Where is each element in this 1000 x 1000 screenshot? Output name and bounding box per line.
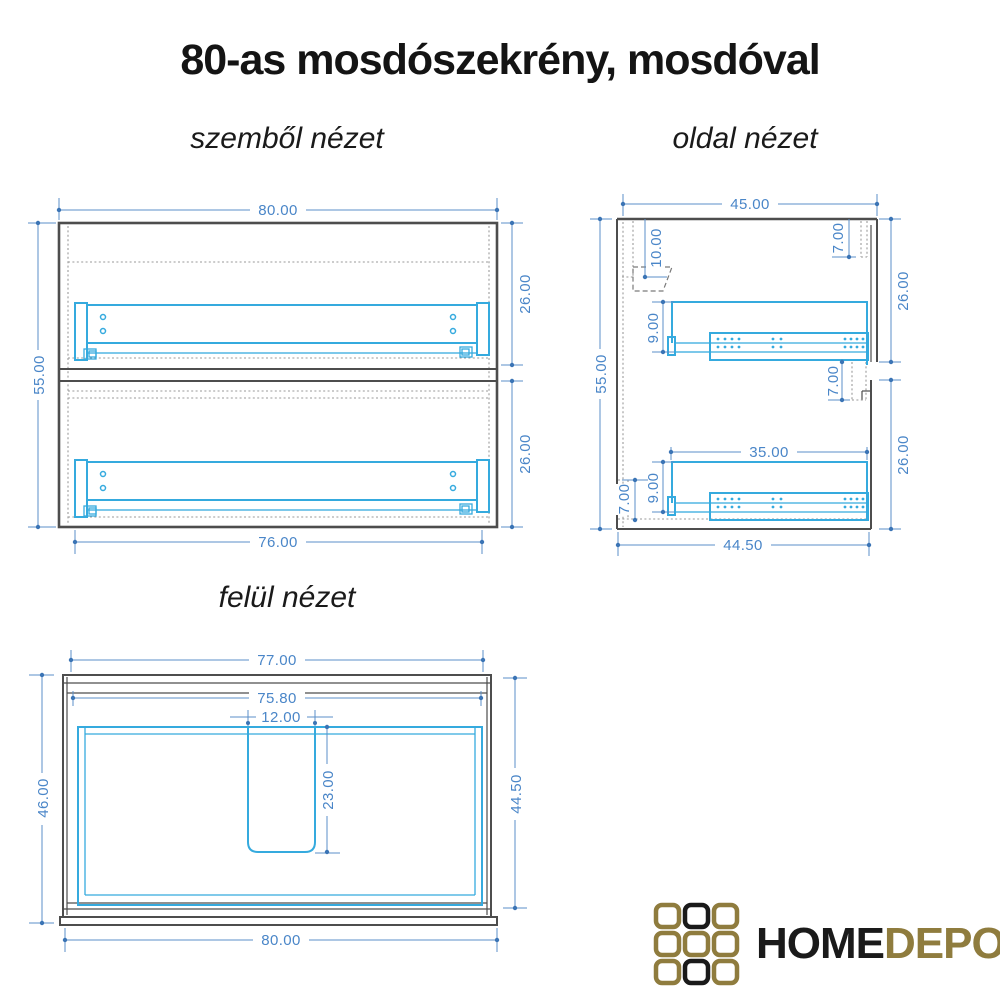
logo-text-home: HOME [756, 919, 884, 968]
dim-side-height: 55.00 [593, 354, 610, 394]
dim-side-lower-section: 26.00 [895, 435, 912, 475]
dim-top-depth-left: 46.00 [35, 778, 52, 818]
logo-grid-icon [652, 902, 740, 986]
dim-top-width-bottom: 80.00 [261, 932, 301, 949]
dim-side-mid-front: 7.00 [825, 366, 842, 397]
wall-bracket-dashed [633, 267, 672, 291]
front-view-drawing: 80.00 55.00 26.00 26.00 76.00 [28, 198, 534, 554]
front-upper-drawer [75, 303, 489, 360]
dim-side-depth-bottom: 44.50 [723, 537, 763, 554]
dim-top-width-inner: 75.80 [257, 690, 297, 707]
dim-side-drawer-depth: 35.00 [749, 444, 789, 461]
dim-side-upper-section: 26.00 [895, 271, 912, 311]
dim-side-depth-top: 45.00 [730, 196, 770, 213]
dim-top-width-top: 77.00 [257, 652, 297, 669]
side-view-drawing: 45.00 55.00 10.00 7.00 26.00 [590, 194, 912, 556]
dim-front-height: 55.00 [31, 355, 48, 395]
top-front-slab [60, 917, 497, 925]
dim-side-upper-rail-offset: 9.00 [645, 313, 662, 344]
logo-text: HOMEDEPO [756, 919, 1000, 969]
top-cabinet-blue [78, 727, 482, 905]
logo: HOMEDEPO [652, 902, 1000, 986]
dim-front-width-top: 80.00 [258, 202, 298, 219]
dim-top-cutout-width: 12.00 [261, 709, 301, 726]
dim-top-depth-right: 44.50 [508, 774, 525, 814]
front-cabinet-outline [59, 223, 497, 527]
siphon-cutout [248, 727, 315, 852]
technical-drawing: 80.00 55.00 26.00 26.00 76.00 [0, 0, 1000, 1000]
logo-text-depo: DEPO [884, 919, 1000, 968]
top-dimensions: 77.00 75.80 12.00 23.00 46.00 [29, 650, 527, 952]
side-dimensions: 45.00 55.00 10.00 7.00 26.00 [590, 194, 912, 556]
front-lower-drawer [75, 460, 489, 517]
dim-side-top-front: 7.00 [830, 223, 847, 254]
dim-front-lower-drawer: 26.00 [517, 434, 534, 474]
dim-top-cutout-depth: 23.00 [320, 770, 337, 810]
side-lower-drawer [668, 462, 868, 520]
dim-front-width-bottom: 76.00 [258, 534, 298, 551]
dim-front-upper-drawer: 26.00 [517, 274, 534, 314]
dim-side-plinth: 7.00 [616, 484, 633, 515]
dim-side-lower-rail-offset: 9.00 [645, 473, 662, 504]
side-upper-drawer [668, 302, 868, 365]
dim-side-back-rail: 10.00 [648, 228, 665, 268]
top-view-drawing: 77.00 75.80 12.00 23.00 46.00 [29, 650, 527, 952]
